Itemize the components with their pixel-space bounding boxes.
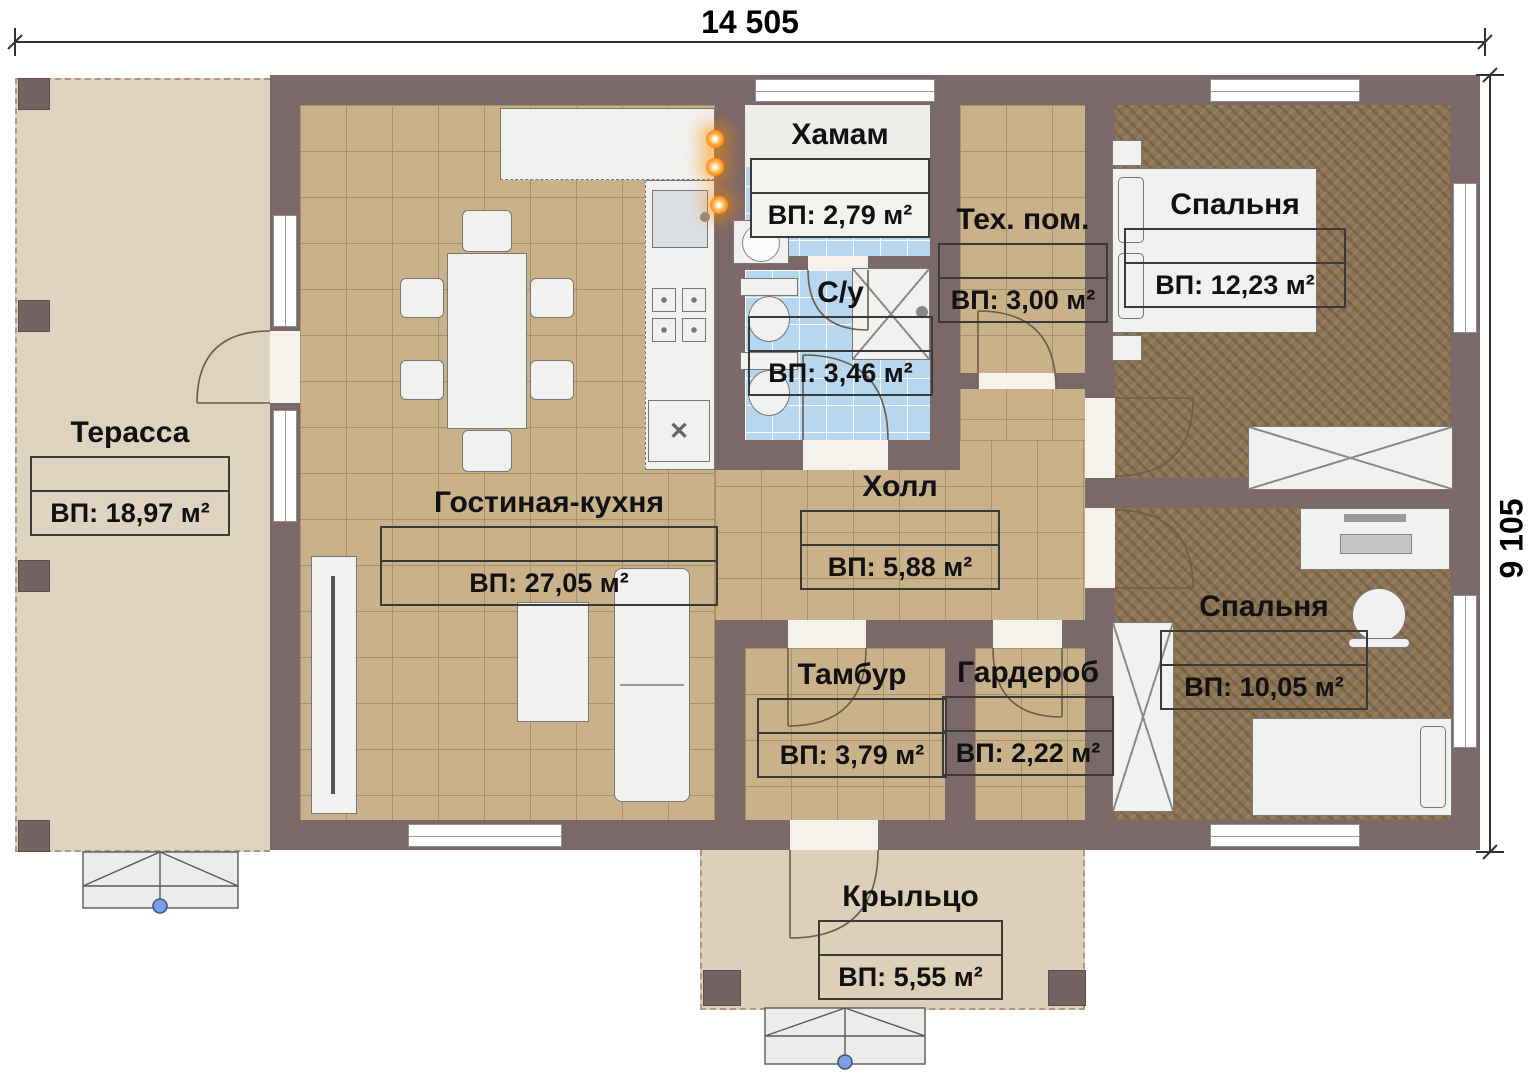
area-box-row [750,318,931,352]
terrace-post [18,560,50,592]
area-box-row [1162,632,1366,666]
area-box-row [752,160,928,194]
area-box-row [759,700,945,734]
area-box-row [32,458,228,492]
window-bedroom1-north [1210,79,1360,102]
dining-chair [400,360,444,400]
area-box: ВП: 5,55 м² [818,920,1003,1000]
nightstand [1112,140,1142,166]
area-box-row [944,698,1112,732]
area-box: ВП: 18,97 м² [30,456,230,536]
dimension-right-line [1489,75,1491,852]
area-box-row [382,528,716,562]
wall-living-tambour [715,620,745,820]
area-box-row [1126,230,1344,264]
coffee-table [517,602,589,722]
room-name: Холл [800,470,1000,504]
dining-chair [400,278,444,318]
room-area: ВП: 18,97 м² [32,492,228,534]
room-name: Гостиная-кухня [380,486,718,520]
dishwasher-cross-icon: ✕ [648,400,710,462]
wardrobe-cabinet [1248,426,1453,490]
room-area: ВП: 2,79 м² [752,194,928,236]
dining-chair [530,278,574,318]
dining-chair [462,430,512,472]
room-area: ВП: 3,46 м² [750,352,931,394]
kitchen-counter-top [500,108,715,180]
window-bedroom1-east [1453,183,1477,333]
room-area: ВП: 2,22 м² [944,732,1112,774]
faucet-icon [700,212,710,222]
dining-chair [530,360,574,400]
room-name: Гардероб [942,656,1114,690]
room-name: С/у [748,276,933,310]
wall-sconce-icon [706,158,724,176]
window-bedroom2-south [1210,824,1360,847]
dining-table [447,253,527,429]
area-box: ВП: 5,88 м² [800,510,1000,590]
area-box: ВП: 2,79 м² [750,158,930,238]
room-label-tambour: Тамбур ВП: 3,79 м² [757,658,947,778]
window-living-west-2 [273,410,297,522]
door-gap-entrance [790,820,878,850]
room-area: ВП: 3,79 м² [759,734,945,776]
terrace-post [18,78,50,110]
stairs-terrace [83,852,238,908]
area-box: ВП: 12,23 м² [1124,228,1346,308]
room-label-hamam: Хамам ВП: 2,79 м² [750,118,930,238]
room-name: Тех. пом. [938,203,1108,237]
room-label-wardrobe: Гардероб ВП: 2,22 м² [942,656,1114,776]
window-living-south [408,824,562,847]
stair-marker-icon [838,1055,852,1069]
window-hamam [755,79,935,102]
area-box-row [820,922,1001,956]
stair-marker-icon [153,899,167,913]
door-gap-bedroom1 [1085,398,1115,478]
door-gap-terrace [270,331,300,403]
area-box: ВП: 10,05 м² [1160,630,1368,710]
room-name: Спальня [1160,590,1368,624]
floor-plan-canvas: 14 505 9 105 [0,0,1534,1080]
dimension-top-line [15,41,1485,43]
room-label-porch: Крыльцо ВП: 5,55 м² [818,880,1003,1000]
room-name: Тамбур [757,658,947,692]
area-box: ВП: 3,00 м² [938,243,1108,323]
room-area: ВП: 27,05 м² [382,562,716,604]
monitor-icon [1344,514,1406,522]
terrace-post [18,820,50,852]
room-area: ВП: 5,55 м² [820,956,1001,998]
room-area: ВП: 10,05 м² [1162,666,1366,708]
room-area: ВП: 3,00 м² [940,279,1106,321]
stairs-porch [765,1008,925,1064]
room-label-bedroom2: Спальня ВП: 10,05 м² [1160,590,1368,710]
door-gap-tambour [788,620,866,648]
stove-burner-icon [652,318,676,342]
wall-sconce-icon [710,196,728,214]
stove-burner-icon [682,318,706,342]
wall-sconce-icon [706,130,724,148]
dining-chair [462,210,512,252]
window-living-west-1 [273,215,297,327]
door-gap-bedroom2 [1085,508,1115,588]
stove-burner-icon [682,288,706,312]
dimension-right-label: 9 105 [1494,464,1531,614]
room-label-bedroom1: Спальня ВП: 12,23 м² [1124,188,1346,308]
room-label-living-kitchen: Гостиная-кухня ВП: 27,05 м² [380,486,718,606]
sofa-cushion-divider [620,684,684,686]
room-name: Хамам [750,118,930,152]
porch-post [703,970,741,1006]
area-box: ВП: 2,22 м² [942,696,1114,776]
room-name: Терасса [30,416,230,450]
window-bedroom2-east [1453,595,1477,748]
area-box-row [802,512,998,546]
room-label-tech-room: Тех. пом. ВП: 3,00 м² [938,203,1108,323]
room-area: ВП: 5,88 м² [802,546,998,588]
dimension-top-label: 14 505 [15,4,1485,41]
stove-burner-icon [652,288,676,312]
terrace-post [18,300,50,332]
door-gap-wardrobe [993,620,1062,648]
pillow [1420,726,1446,808]
door-gap-bathroom [803,440,888,470]
porch-post [1048,970,1086,1006]
tv-icon [331,576,335,794]
keyboard-icon [1340,534,1412,554]
room-name: Спальня [1124,188,1346,222]
room-label-bathroom: С/у ВП: 3,46 м² [748,276,933,396]
door-gap-tech [978,373,1056,389]
area-box: ВП: 3,46 м² [748,316,933,396]
room-label-hall: Холл ВП: 5,88 м² [800,470,1000,590]
room-name: Крыльцо [818,880,1003,914]
area-box-row [940,245,1106,279]
room-area: ВП: 12,23 м² [1126,264,1344,306]
area-box: ВП: 3,79 м² [757,698,947,778]
area-box: ВП: 27,05 м² [380,526,718,606]
nightstand [1112,335,1142,361]
room-label-terrace: Терасса ВП: 18,97 м² [30,416,230,536]
